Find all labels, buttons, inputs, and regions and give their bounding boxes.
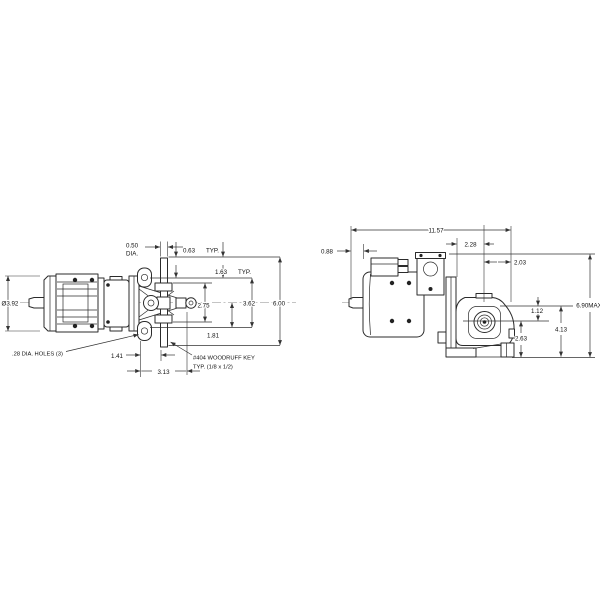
conduit-nipple [398, 260, 408, 266]
clevis-block [176, 298, 186, 308]
bolt-dot [407, 319, 411, 323]
screw-dot [419, 254, 422, 257]
dim-203: 2.03 [514, 260, 527, 267]
dim-413: 4.13 [555, 327, 568, 334]
bolt-dot [73, 278, 77, 282]
dim-690max: 6.90MAX [576, 303, 600, 310]
dim-1157: 11.57 [428, 228, 444, 235]
dim-141: 1.41 [111, 353, 124, 360]
bracket-lug [438, 332, 446, 343]
bolt-dot [407, 281, 411, 285]
dim-163: 1.63 [215, 269, 228, 276]
note-woodruff-2: TYP. (1/8 x 1/2) [193, 365, 233, 371]
bolt-dot [90, 278, 94, 282]
motor-shaft-stub [29, 298, 44, 309]
technical-drawing: Ø3.92 .28 DIA. HOLES (3) 0.50 DIA. 0.63 … [0, 0, 600, 600]
dim-362: 3.62 [243, 301, 256, 308]
bolt-dot [106, 283, 110, 287]
note-mount-holes: .28 DIA. HOLES (3) [12, 352, 63, 358]
shaft-hub-top [155, 283, 172, 291]
bearing-boss [144, 296, 159, 311]
terminal-box [371, 258, 398, 276]
dim-112: 1.12 [531, 308, 544, 315]
mount-ear-bottom [138, 322, 152, 341]
top-view: Ø3.92 .28 DIA. HOLES (3) 0.50 DIA. 0.63 … [2, 242, 297, 378]
bolt-dot [390, 319, 394, 323]
bolt-dot [106, 320, 110, 324]
volute-side-tab [509, 329, 515, 338]
dim-shaft-dia-value: 0.50 [126, 243, 139, 250]
clevis-eye [186, 298, 196, 308]
side-view: 11.57 0.88 2.28 2.03 1.12 [321, 225, 600, 358]
mount-ear-top [138, 268, 152, 287]
dim-263: 2.63 [515, 336, 528, 343]
shaft-hub-bottom [155, 315, 172, 323]
dim-body-diameter: Ø3.92 [2, 301, 19, 308]
adapter-plate [98, 278, 104, 329]
dim-275: 2.75 [197, 303, 210, 310]
dim-063: 0.63 [183, 248, 196, 255]
screw-dot [429, 287, 433, 291]
screw-dot [438, 254, 441, 257]
pump-tab-top [110, 277, 122, 281]
bolt-dot [90, 324, 94, 328]
dim-181: 1.81 [207, 333, 220, 340]
conduit-nipple [398, 267, 408, 273]
dim-228: 2.28 [464, 242, 477, 249]
bolt-dot [390, 281, 394, 285]
motor-body [56, 274, 98, 332]
foot [501, 343, 514, 357]
pump-body [104, 280, 129, 327]
dim-313: 3.13 [157, 369, 170, 376]
side-view-machine [342, 253, 515, 358]
dim-088: 0.88 [321, 249, 334, 256]
note-woodruff-1: #404 WOODRUFF KEY [193, 356, 255, 362]
dim-600: 6.00 [273, 301, 286, 308]
bolt-dot [73, 324, 77, 328]
base-block [446, 348, 476, 357]
dim-163-typ: TYP. [238, 269, 251, 276]
dim-shaft-dia-suffix: DIA. [126, 251, 138, 258]
dim-063-typ: TYP. [206, 248, 219, 255]
pump-tab-bottom [110, 327, 122, 331]
